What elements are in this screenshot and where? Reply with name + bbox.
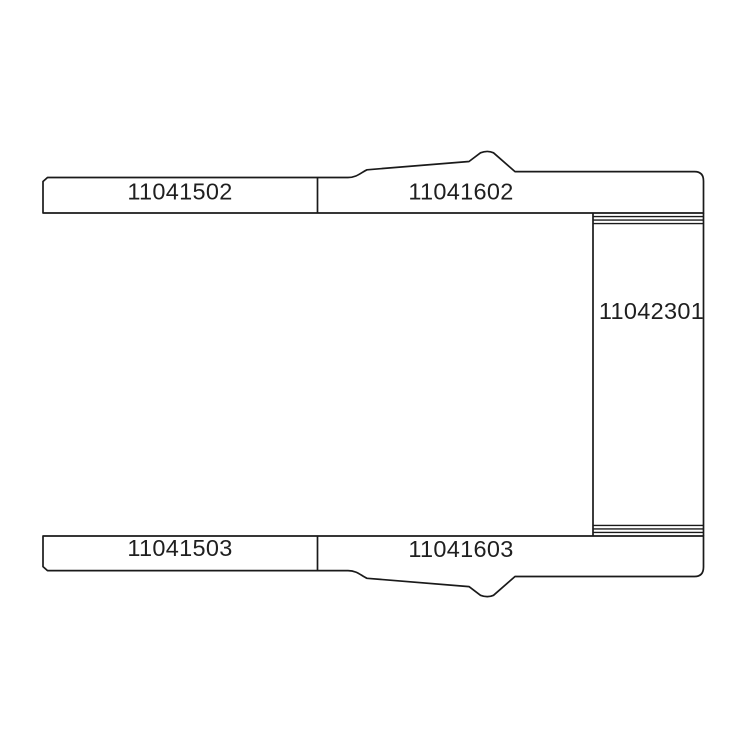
part-label-top-rail-rear: 11041602: [408, 179, 513, 205]
part-label-bottom-rail-rear: 11041603: [408, 536, 513, 562]
part-label-cross-member: 11042301: [599, 298, 704, 324]
cross-member-bottom-flange-lines: [593, 525, 704, 532]
cross-member: [593, 213, 704, 536]
part-label-bottom-rail-front: 11041503: [127, 535, 232, 561]
cross-member-top-flange-lines: [593, 217, 704, 224]
parts-diagram-canvas: 11041502 11041602 11042301 11041503 1104…: [0, 0, 750, 750]
frame-assembly-drawing: 11041502 11041602 11042301 11041503 1104…: [0, 0, 750, 750]
part-label-top-rail-front: 11041502: [127, 179, 232, 205]
